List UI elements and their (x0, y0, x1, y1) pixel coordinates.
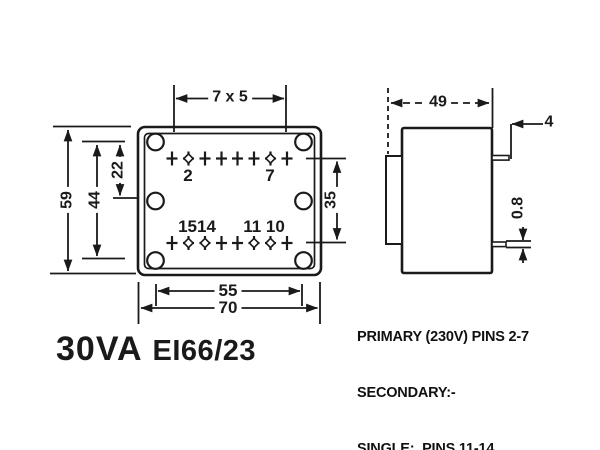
note-primary: PRIMARY (230V) PINS 2-7 (357, 328, 552, 347)
part-title: 30VA EI66/23 (56, 330, 256, 369)
side-pin-lower (492, 242, 506, 247)
note-single: SINGLE: PINS 11-14 (357, 440, 552, 450)
dim-label-overall-width: 70 (215, 299, 242, 317)
winding-notes: PRIMARY (230V) PINS 2-7 SECONDARY:- SING… (357, 291, 552, 450)
side-view-outline (386, 128, 509, 273)
dim-label-hole-pitch: 22 (111, 157, 128, 183)
pin-label-1110: 11 10 (242, 218, 286, 236)
dim-label-overall-height: 59 (60, 187, 77, 213)
dim-label-pin-thickness: 0.8 (511, 196, 528, 220)
transformer-datasheet-drawing: 7 x 5 59 44 22 35 55 70 49 4 0.8 2 7 151… (0, 0, 600, 450)
dim-label-hole-span: 44 (88, 187, 105, 213)
dim-label-depth: 49 (425, 95, 451, 112)
top-view-outline (138, 127, 321, 275)
pin-label-2: 2 (182, 167, 193, 185)
dim-label-pin-length: 4 (544, 115, 555, 132)
part-model-number: EI66/23 (153, 335, 256, 368)
note-secondary: SECONDARY:- (357, 384, 552, 403)
pin-label-7: 7 (264, 167, 275, 185)
dim-label-pin-row-span: 35 (324, 187, 341, 213)
pin-label-1514: 1514 (177, 218, 217, 236)
dim-label-pin-grid: 7 x 5 (208, 90, 252, 107)
part-power-rating: 30VA (56, 330, 143, 369)
side-pin-upper (492, 156, 509, 161)
